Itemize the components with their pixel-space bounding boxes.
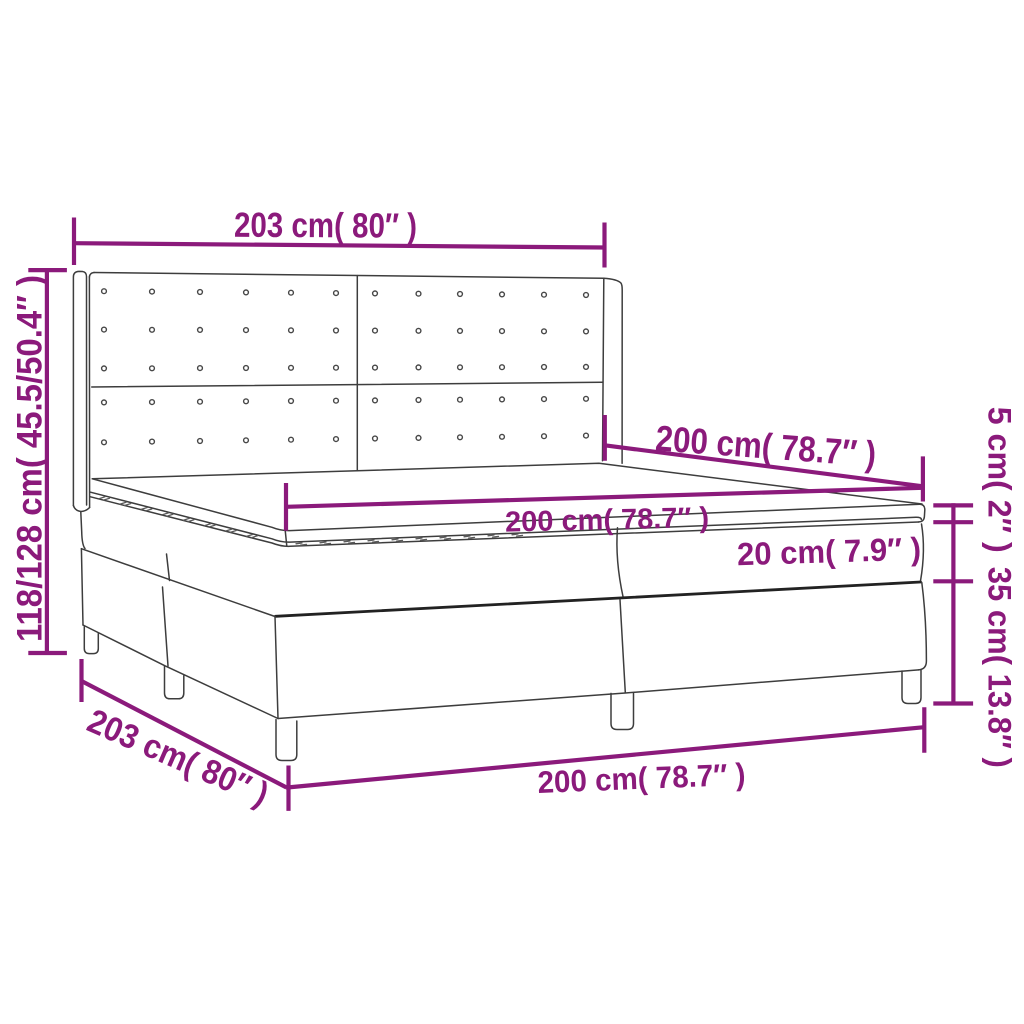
svg-text:35 cm( 13.8″ ): 35 cm( 13.8″ ) <box>982 567 1018 768</box>
svg-text:203 cm( 80″ ): 203 cm( 80″ ) <box>234 206 417 246</box>
svg-text:118/128 cm( 45.5/50.4″ ): 118/128 cm( 45.5/50.4″ ) <box>11 275 50 642</box>
svg-text:5 cm( 2″ ): 5 cm( 2″ ) <box>982 407 1018 553</box>
svg-text:20 cm( 7.9″ ): 20 cm( 7.9″ ) <box>736 531 921 573</box>
svg-text:200 cm( 78.7″ ): 200 cm( 78.7″ ) <box>505 502 710 539</box>
